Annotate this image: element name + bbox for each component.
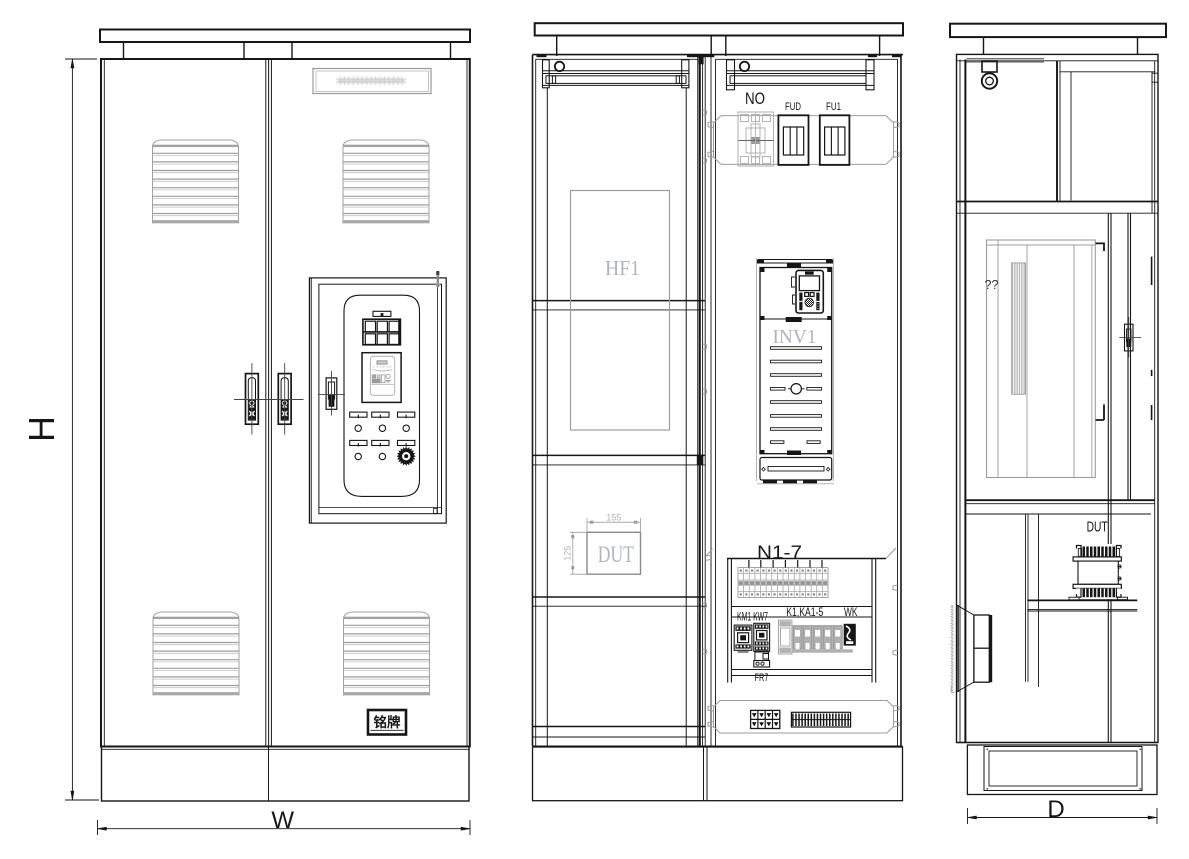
- svg-text:155: 155: [606, 513, 621, 524]
- svg-text:K1,KA1-5: K1,KA1-5: [786, 605, 823, 619]
- svg-text:NO: NO: [745, 89, 765, 108]
- svg-text:H: H: [21, 416, 62, 442]
- svg-text:DUT: DUT: [598, 542, 634, 567]
- svg-text:FR7: FR7: [755, 672, 769, 684]
- svg-text:KM1 KW7: KM1 KW7: [737, 612, 768, 624]
- svg-text:125: 125: [563, 546, 574, 561]
- svg-text:D: D: [1047, 796, 1064, 823]
- svg-text:FUD: FUD: [785, 101, 801, 113]
- svg-text:INV1: INV1: [773, 326, 817, 348]
- svg-text:HF1: HF1: [605, 256, 640, 280]
- svg-text:N1-7: N1-7: [757, 543, 802, 563]
- svg-text:W: W: [271, 807, 294, 834]
- svg-text:WK: WK: [844, 605, 858, 619]
- svg-text:FU1: FU1: [826, 101, 841, 113]
- svg-text:DUT: DUT: [1087, 520, 1108, 536]
- svg-text:铭牌: 铭牌: [374, 714, 401, 730]
- svg-text:??: ??: [985, 278, 999, 292]
